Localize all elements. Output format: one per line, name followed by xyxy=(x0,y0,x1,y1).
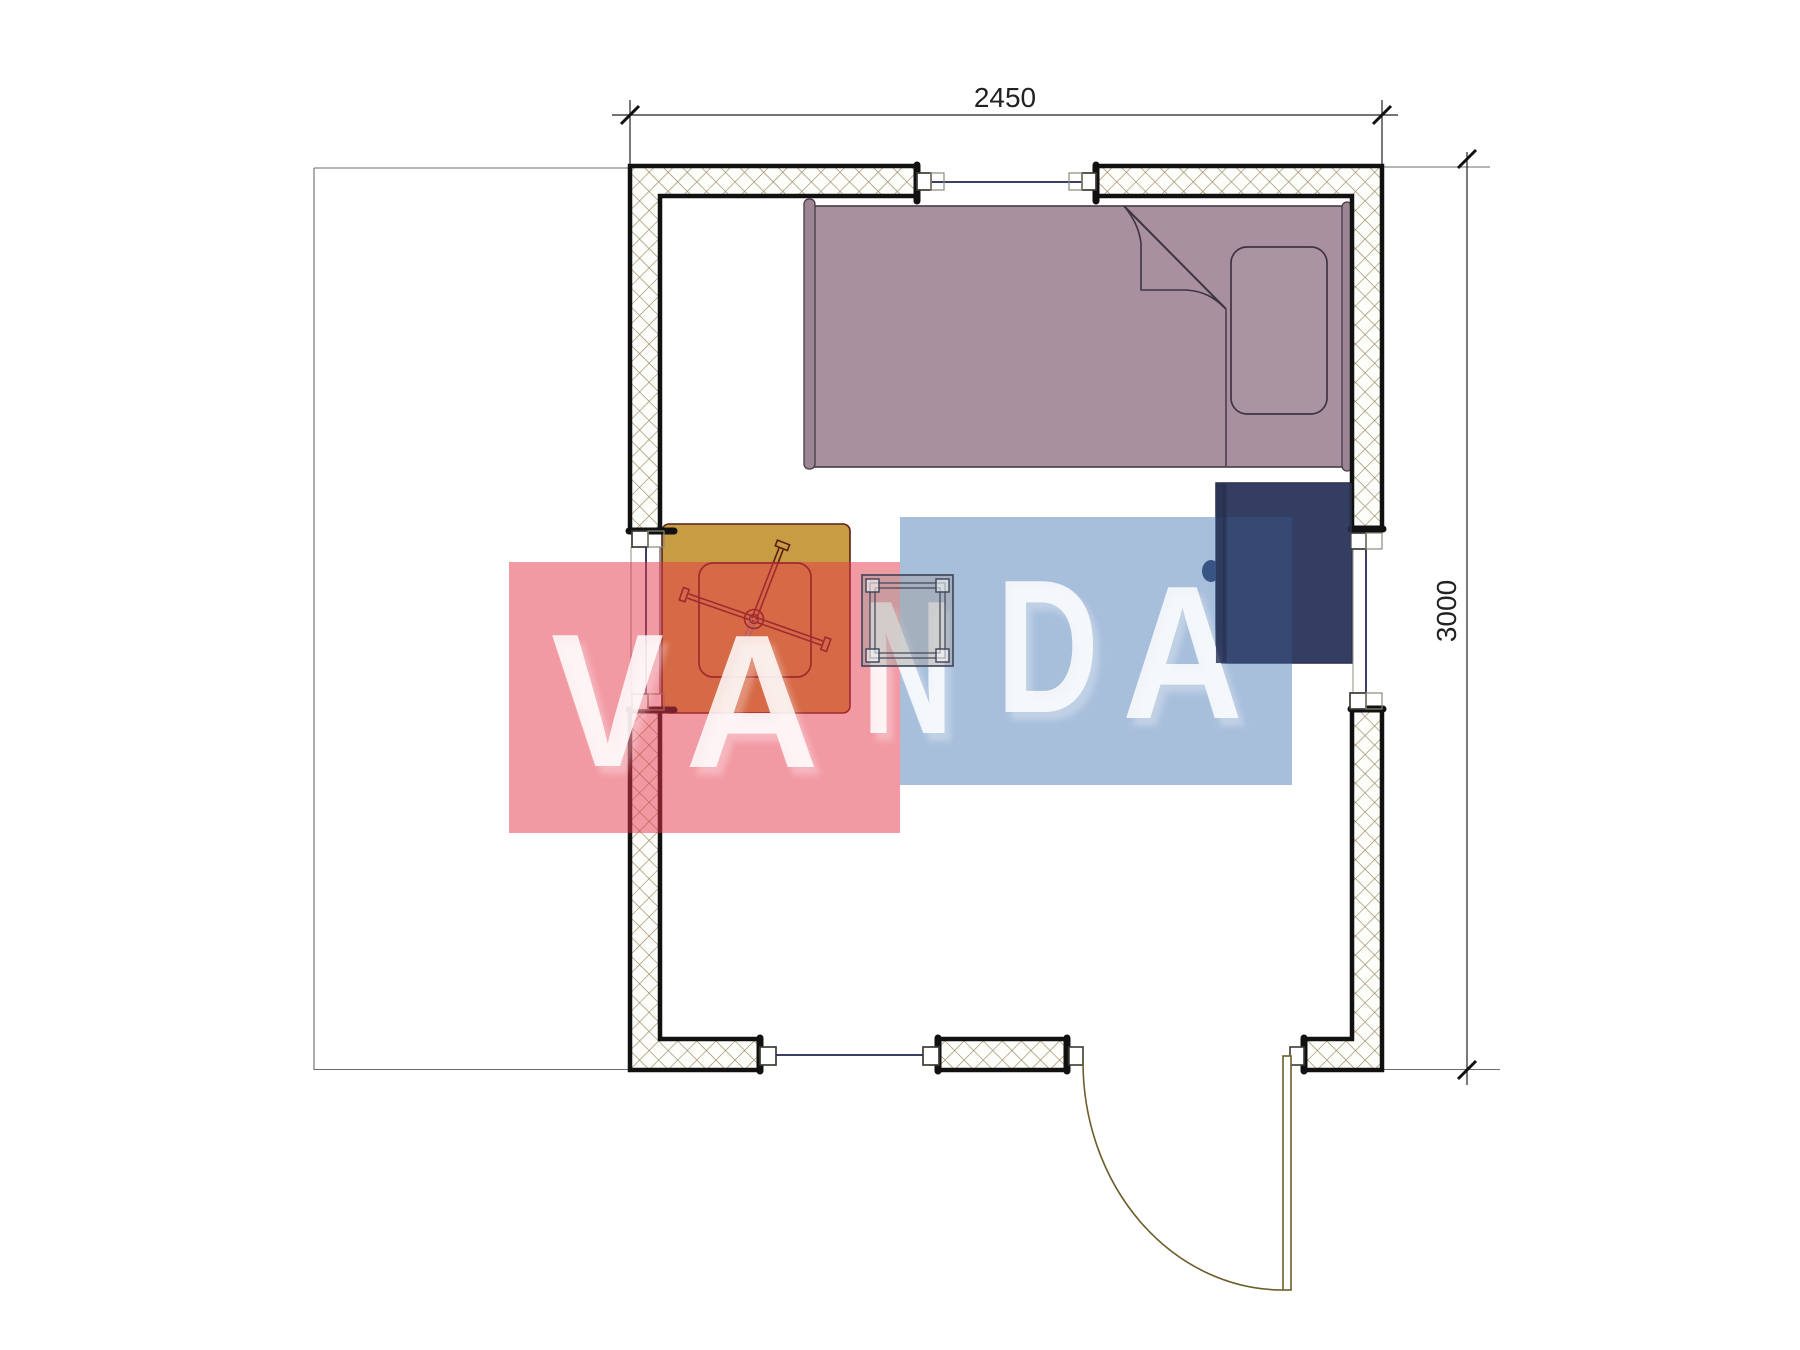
svg-text:V: V xyxy=(551,595,664,807)
svg-text:2450: 2450 xyxy=(974,82,1036,113)
svg-text:A: A xyxy=(685,596,819,808)
svg-text:3000: 3000 xyxy=(1431,580,1462,642)
svg-text:D: D xyxy=(996,541,1099,753)
